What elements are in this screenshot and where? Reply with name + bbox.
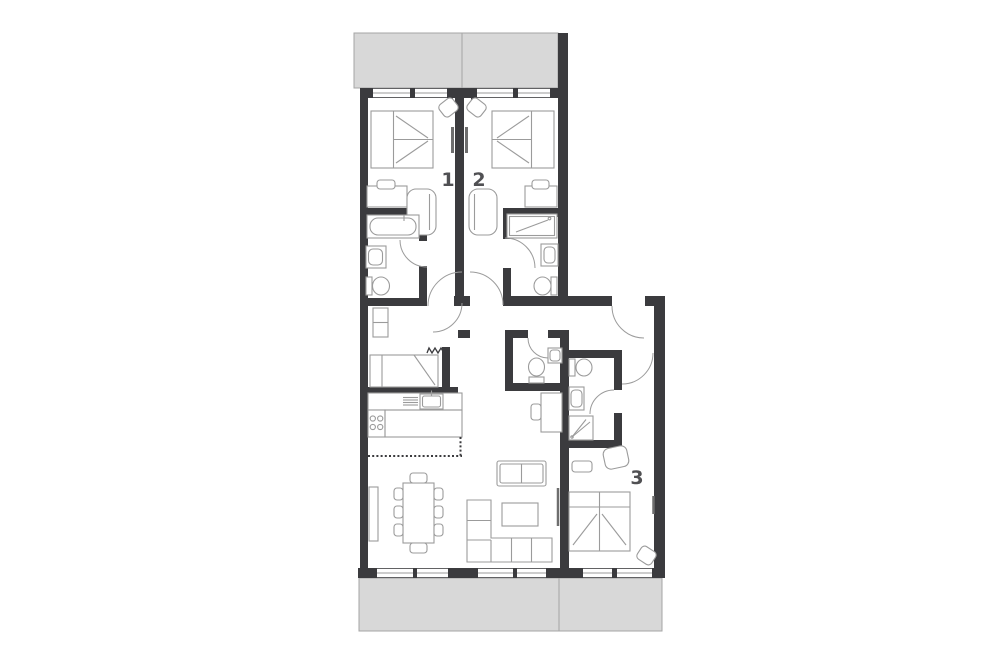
dining-chair-right-3 (434, 524, 443, 536)
toilet-bath1-tank (366, 277, 372, 295)
room-label-3: 3 (630, 467, 643, 489)
coffee-table (502, 503, 538, 526)
sideboard-living (369, 487, 378, 541)
kitchen-counter-top (368, 393, 462, 410)
dining-chair-top (410, 473, 427, 483)
wall-party (558, 33, 568, 306)
room-label-2: 2 (472, 169, 485, 191)
wall-entry-top-right (645, 296, 665, 306)
wall-center-spine (560, 330, 569, 578)
coatrack-zigzag (427, 348, 444, 353)
toilet-bath1-bowl (373, 277, 390, 295)
wall-bath3-bottom (560, 440, 622, 448)
wall-bath2-bottom (503, 296, 560, 306)
wall-entry-top-left (558, 296, 612, 306)
wall-wc-top-left (513, 330, 528, 338)
toilet-bath2-tank (551, 277, 557, 295)
toilet-bath3-tank (569, 359, 575, 376)
balcony-bottom (359, 578, 662, 631)
kitchen-counter-left (368, 410, 385, 437)
toilet-wc-tank (529, 377, 544, 383)
wall-left (360, 88, 368, 578)
bench-room3 (572, 461, 592, 472)
wall-right (654, 296, 665, 578)
floor-plan-svg: 123 (0, 0, 1000, 667)
desk-nook-chair (531, 404, 541, 420)
wall-divider-rooms12 (455, 98, 464, 296)
wall-wc-left (505, 330, 513, 391)
armchair-room2 (469, 189, 497, 235)
floor-plan-page: 123 (0, 0, 1000, 667)
chair-room2 (465, 96, 488, 118)
dining-chair-left-1 (394, 488, 403, 500)
wall-wc-bottom (505, 383, 569, 391)
desk-nook (541, 393, 562, 432)
armchair-room3 (602, 445, 630, 471)
kitchen-peninsula (385, 410, 462, 437)
door-arc-room2 (470, 272, 503, 305)
door-arc-bath3 (590, 390, 614, 414)
toilet-bath3-bowl (576, 359, 592, 376)
wall-studyroom-right (442, 347, 450, 387)
door-arc-room3 (622, 353, 653, 384)
radiator-room2 (465, 127, 468, 153)
wall-hall-stub (458, 330, 470, 338)
room-label-1: 1 (441, 169, 454, 191)
tv-room1 (377, 180, 395, 189)
toilet-bath2-bowl (534, 277, 551, 295)
door-arc-bath2 (505, 238, 535, 268)
radiator-room1 (451, 127, 454, 153)
door-arc-entrance (612, 306, 644, 338)
dining-chair-left-2 (394, 506, 403, 518)
door-arc-wc (528, 338, 548, 358)
bed-studyroom (370, 355, 438, 387)
door-arc-bath1 (400, 240, 427, 267)
wall-bath1-bottom (361, 298, 427, 306)
wall-bath3-right-upper (614, 358, 622, 390)
dining-chair-left-3 (394, 524, 403, 536)
dining-table (403, 483, 434, 543)
tv-room2 (532, 180, 549, 189)
balcony-top (354, 33, 558, 88)
wall-bath1-right-lower (419, 266, 427, 298)
door-arc-studyroom (433, 303, 462, 332)
toilet-wc-bowl (529, 358, 545, 376)
dining-chair-right-2 (434, 506, 443, 518)
wall-wc-top-right (548, 330, 562, 338)
dining-chair-bottom (410, 543, 427, 553)
dining-chair-right-1 (434, 488, 443, 500)
wall-bath2-left-lower (503, 268, 511, 296)
wall-bath3-top (569, 350, 622, 358)
